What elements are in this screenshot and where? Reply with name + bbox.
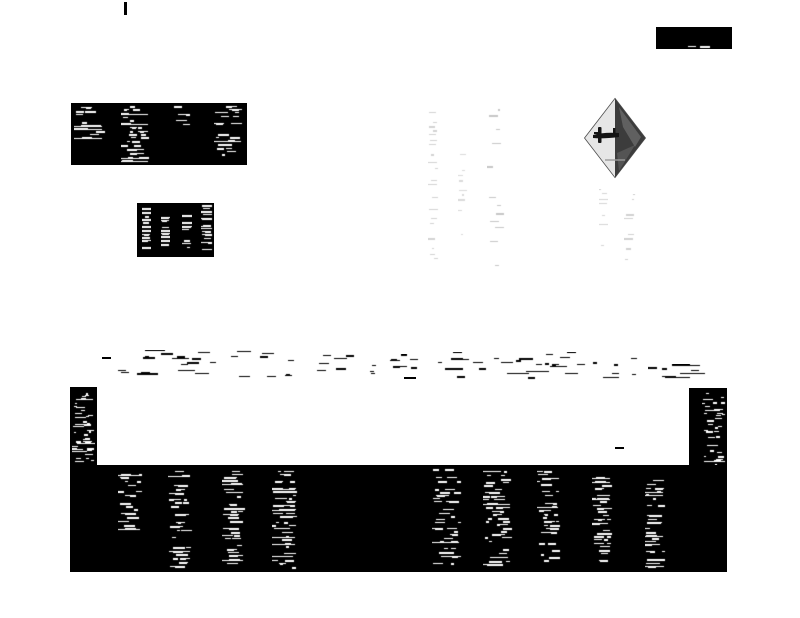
ad-text-column-1: [118, 470, 143, 532]
watermark-column-2: [458, 143, 468, 248]
watermark-column-1: [428, 92, 439, 277]
masthead-column-4: [214, 105, 245, 157]
watermark-column-3: [487, 103, 505, 271]
byline-fragments-3: [428, 352, 638, 380]
ad-text-column-9: [645, 472, 666, 570]
masthead-column-2: [121, 105, 151, 164]
byline-fragments-1: [112, 350, 297, 380]
ad-text-column-2: [168, 470, 193, 570]
notice-line-3: [182, 214, 192, 251]
scanned-page: [0, 0, 800, 618]
notice-line-1: [142, 207, 151, 253]
diamond-lower-stripe: [605, 159, 625, 161]
ad-bottom-bar: [70, 465, 727, 572]
byline-fragments-4: [648, 364, 710, 380]
byline-fragments-2: [300, 354, 420, 378]
masthead-column-1: [74, 106, 106, 140]
ad-text-column-3: [222, 470, 246, 570]
caption-fragment-1: [599, 189, 608, 263]
stray-dash-2: [404, 377, 416, 379]
masthead-column-3: [171, 105, 191, 127]
ad-text-column-7: [537, 470, 561, 566]
advertisement-block: [70, 387, 727, 572]
notice-box: [137, 203, 214, 257]
header-corner-fragment: [656, 27, 732, 49]
caption-fragment-2: [624, 194, 637, 264]
stray-dash-1: [102, 357, 111, 359]
ad-text-column-6: [483, 470, 513, 570]
ad-text-column-4: [272, 470, 298, 570]
notice-line-4: [201, 204, 213, 257]
ad-text-column-8: [592, 472, 613, 564]
ad-text-column-5: [432, 468, 462, 572]
notice-line-2: [161, 216, 170, 248]
header-fragment-texture: [656, 27, 732, 49]
masthead-box: [71, 103, 247, 165]
diamond-airplane-emblem: [583, 97, 647, 179]
edge-tick-mark: [124, 2, 127, 15]
